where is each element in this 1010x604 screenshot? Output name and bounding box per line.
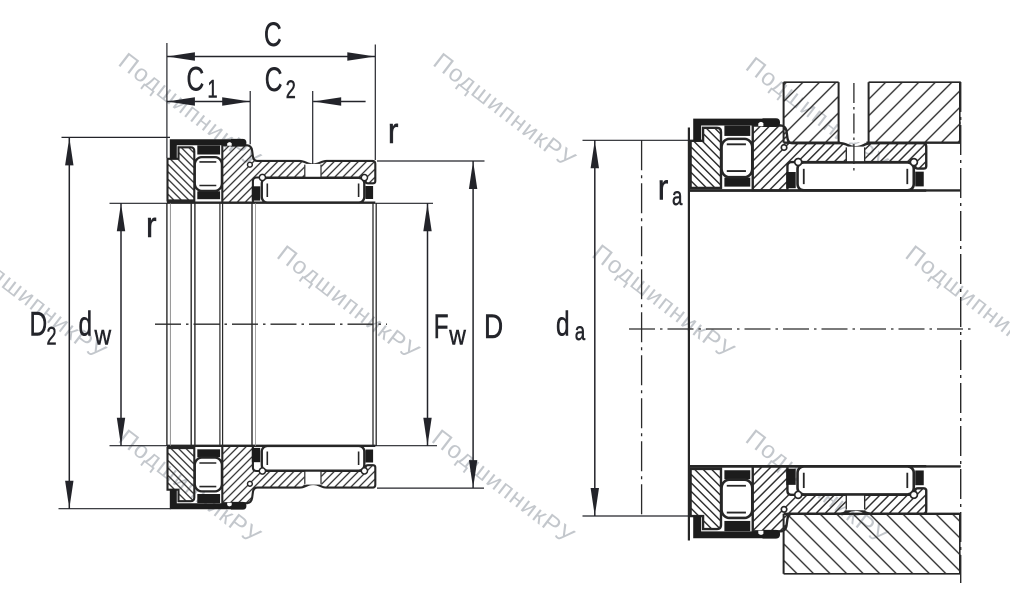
svg-text:a: a [672,181,683,211]
svg-text:C: C [265,61,283,99]
svg-text:w: w [448,320,466,351]
svg-text:2: 2 [47,322,57,351]
svg-text:d: d [556,306,570,344]
svg-text:r: r [146,205,157,245]
svg-text:a: a [575,316,586,346]
svg-text:2: 2 [286,75,296,104]
svg-text:C: C [187,61,205,99]
svg-text:C: C [264,16,282,54]
svg-text:w: w [94,320,112,351]
svg-text:r: r [658,168,669,208]
svg-text:F: F [434,308,449,346]
svg-text:D: D [484,308,503,346]
svg-text:r: r [388,111,399,151]
svg-text:D: D [30,306,48,344]
svg-text:d: d [79,306,93,344]
svg-text:1: 1 [208,75,218,104]
